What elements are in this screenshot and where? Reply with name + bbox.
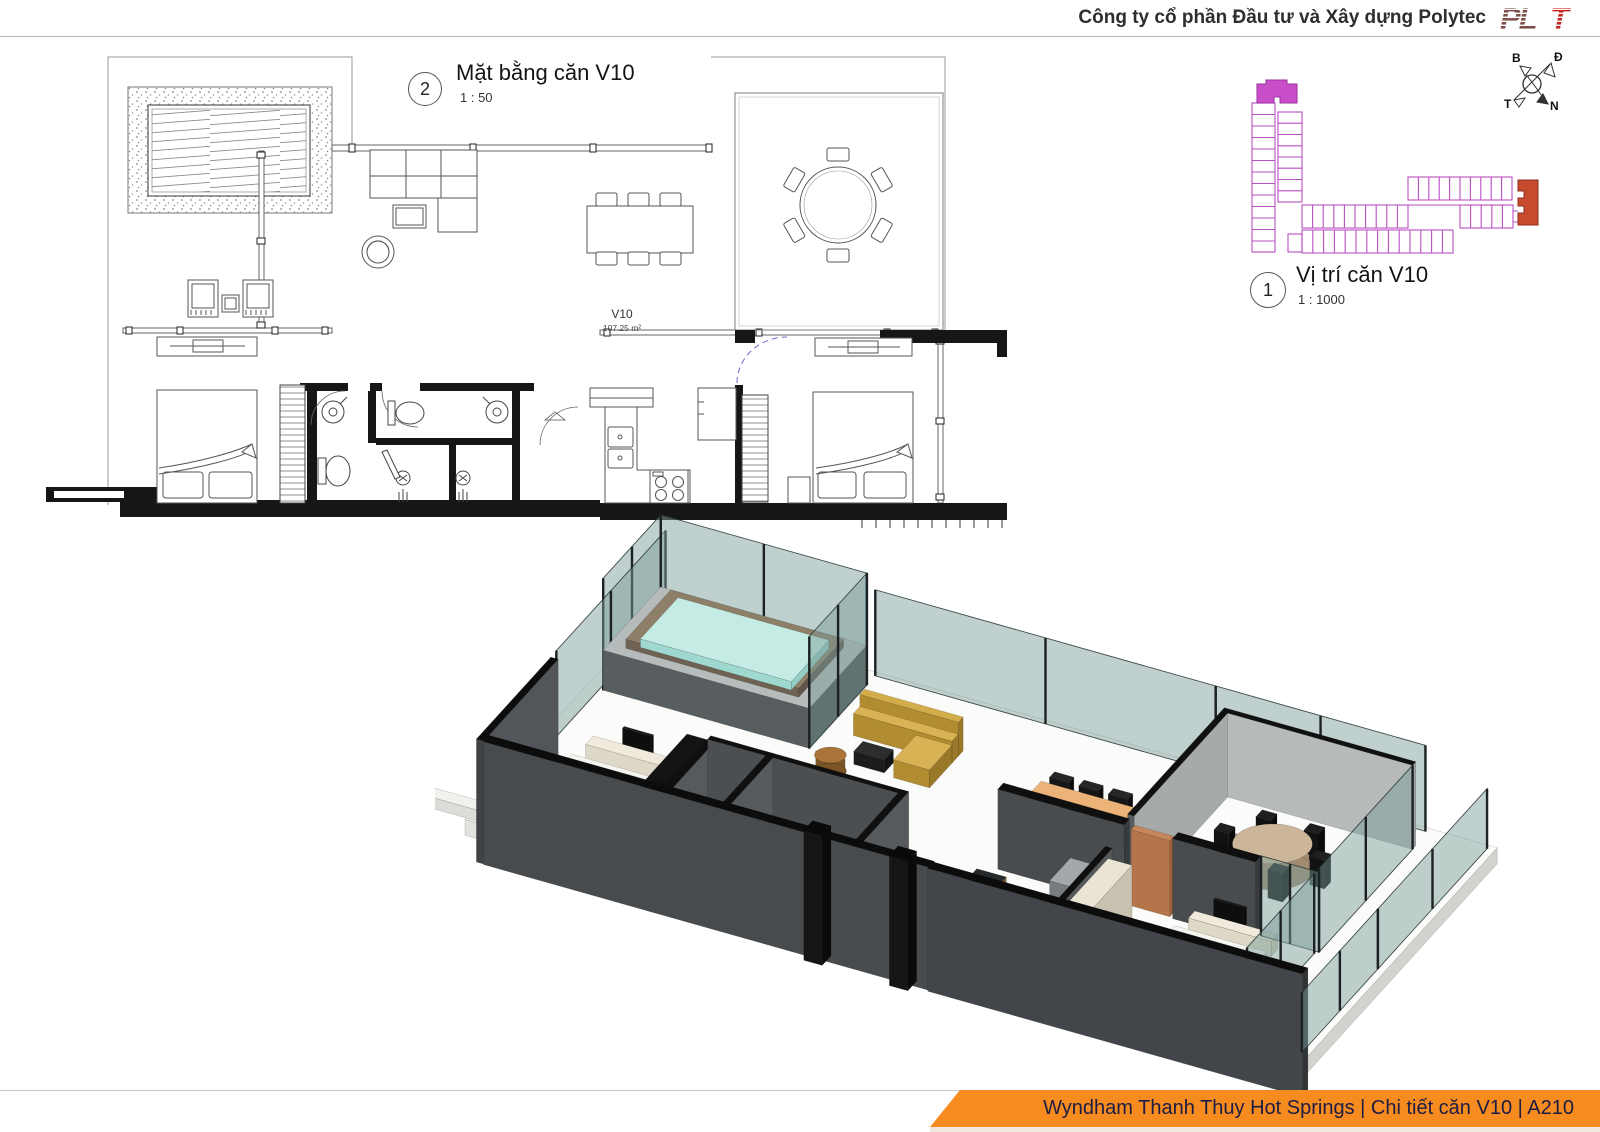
plan-deck-chairs [188,280,273,317]
compass-south-label: N [1550,99,1559,113]
isometric-3d-view [435,495,1560,1103]
drawing-sheet: Công ty cổ phần Đầu tư và Xây dựng Polyt… [0,0,1600,1132]
sheet-title: Wyndham Thanh Thuy Hot Springs | Chi tiế… [1043,1097,1600,1120]
site-highlight-block [1257,80,1297,103]
plan-bath-fixtures [318,397,508,502]
company-name: Công ty cổ phần Đầu tư và Xây dựng Polyt… [1078,7,1486,29]
logo-letter-t: T [1550,2,1572,34]
floor-plan-view-number: 2 [408,72,442,106]
plan-dining-table [587,193,693,265]
site-plan-scale: 1 : 1000 [1298,292,1345,307]
unit-area-label: 107.25 m² [603,323,641,333]
floor-plan-scale: 1 : 50 [460,90,493,105]
unit-code-label: V10 [611,307,633,321]
plt-logo-icon: PL T [1498,2,1586,34]
compass-north-label: B [1512,51,1521,65]
site-plan-title: Vị trí căn V10 [1296,262,1428,288]
floor-plan-title: Mặt bằng căn V10 [456,60,635,86]
compass-icon: B Đ T N [1498,50,1586,130]
logo-letters-pl: PL [1500,2,1537,34]
plan-pool [128,87,332,213]
compass-east-label: Đ [1554,50,1563,64]
plan-kitchen [590,388,736,503]
floor-plan-drawing: V10 107.25 m² [40,50,1050,535]
plan-round-room [735,93,943,330]
plan-bedroom2-furniture [788,338,913,503]
title-bar: Công ty cổ phần Đầu tư và Xây dựng Polyt… [0,0,1600,37]
plan-living-furniture [362,150,477,268]
site-plan-view-number: 1 [1250,272,1286,308]
plan-wardrobe-2 [742,395,768,502]
plan-bedroom1-furniture [157,337,257,503]
compass-west-label: T [1504,97,1512,111]
footer-banner: Wyndham Thanh Thuy Hot Springs | Chi tiế… [930,1090,1600,1127]
plan-wardrobe-1 [280,385,305,503]
footer-strip [930,1127,1600,1132]
site-selected-unit [1518,180,1538,225]
